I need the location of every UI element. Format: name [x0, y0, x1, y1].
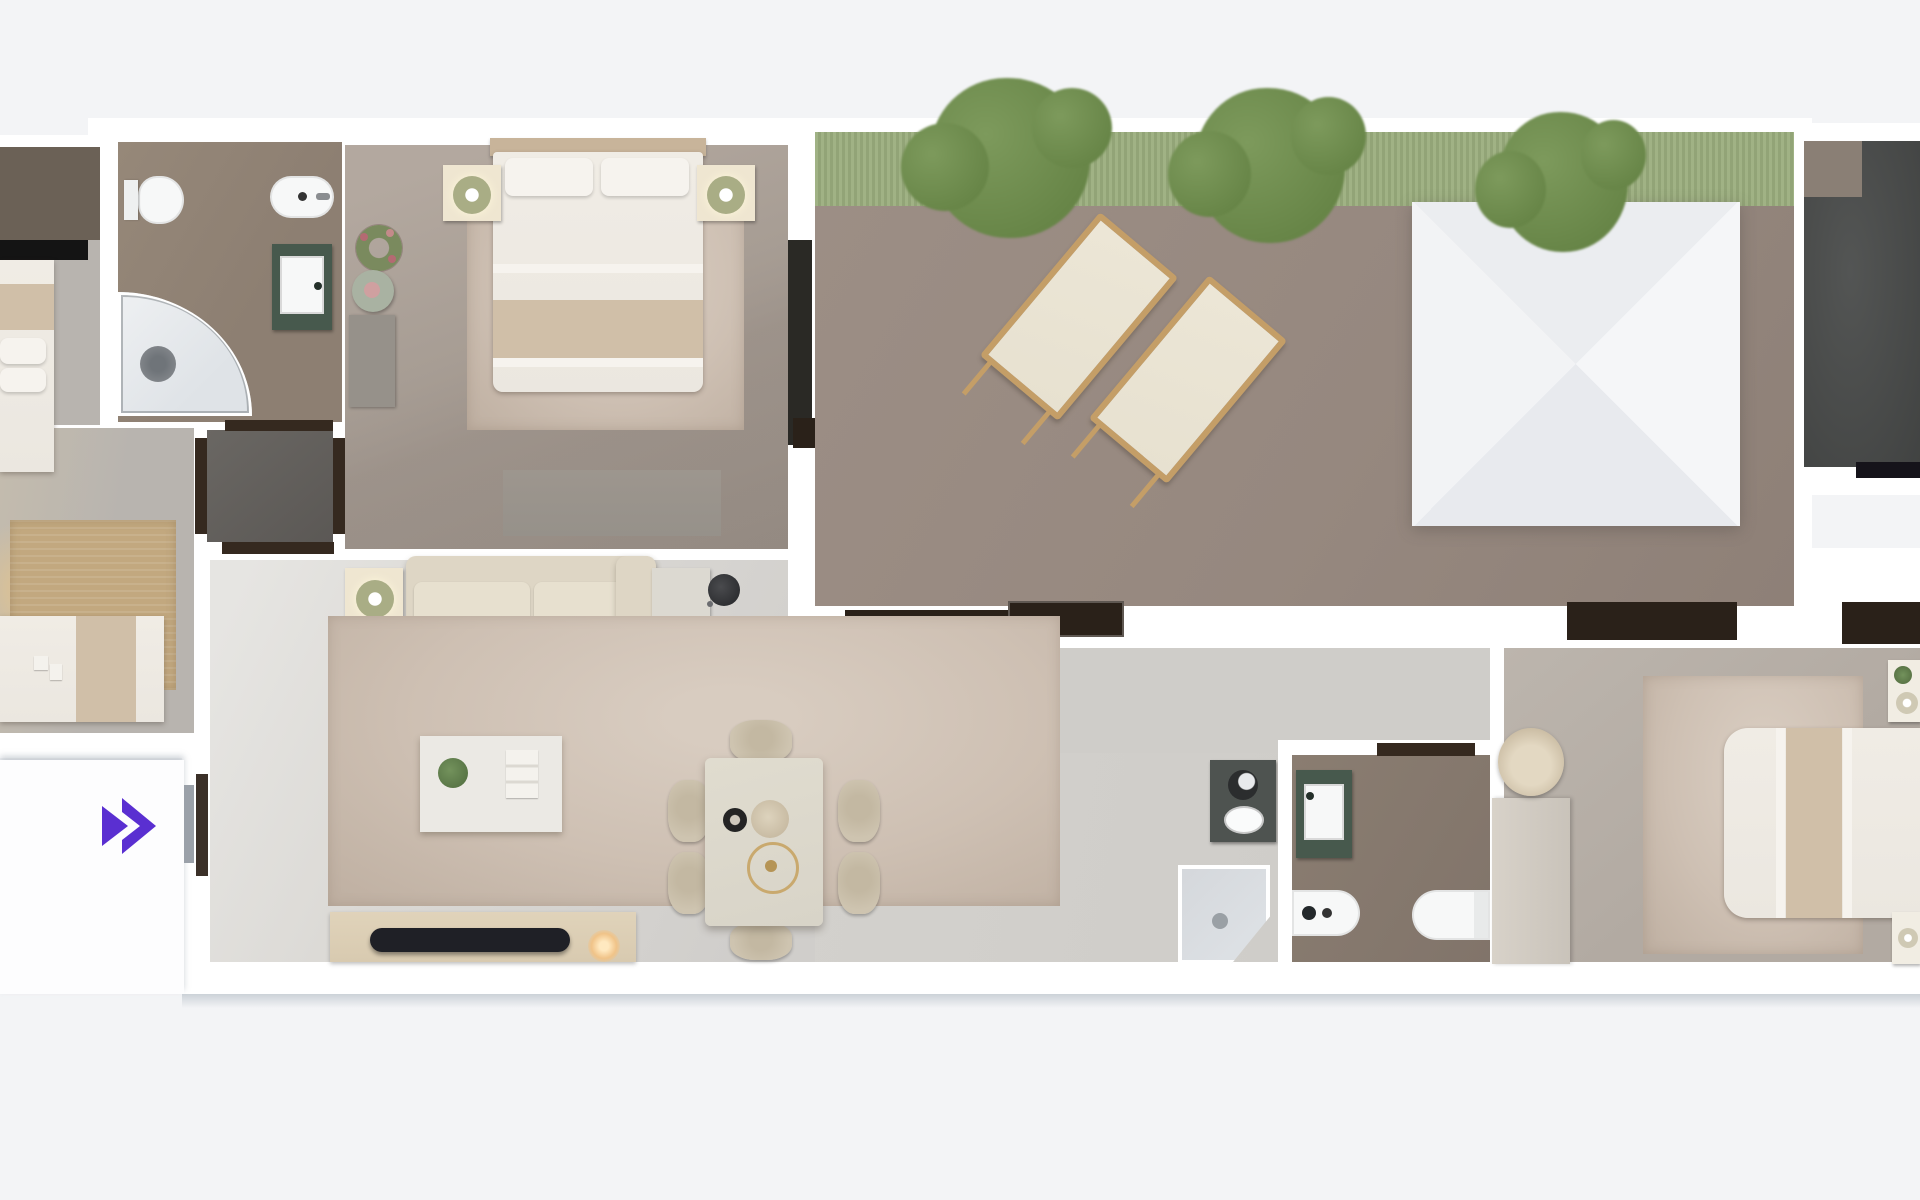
tree	[930, 78, 1090, 238]
table-lamp	[1898, 928, 1918, 948]
single-bed-stripe	[76, 616, 136, 722]
vanity-bathroom-1	[272, 244, 332, 330]
desk	[1492, 798, 1570, 964]
oval-sink	[1224, 806, 1264, 834]
media-room-cabinet	[1804, 141, 1862, 197]
shower-drain	[1212, 913, 1228, 929]
bed-1-pillow	[505, 158, 593, 196]
bed-1	[493, 152, 703, 392]
building-shadow	[182, 994, 1920, 1008]
bidet-faucet	[316, 193, 330, 200]
wreath-flower	[360, 233, 368, 241]
dining-table	[705, 758, 823, 926]
doorframe	[1377, 743, 1475, 756]
expand-button[interactable]	[98, 796, 160, 856]
nightstand	[1892, 912, 1920, 964]
bed-3-pillow	[0, 368, 46, 392]
dining-chair	[838, 780, 880, 842]
media-room-console	[1856, 462, 1920, 478]
vestibule-floor	[207, 430, 333, 542]
black-bowl	[723, 808, 747, 832]
doorframe	[333, 438, 345, 534]
round-side-table	[352, 270, 394, 312]
entry-doorframe	[196, 774, 208, 876]
bedroom-1-dresser	[503, 470, 721, 536]
console-lamp	[588, 930, 620, 962]
wreath-flower	[386, 229, 394, 237]
plant	[1894, 666, 1912, 684]
bidet	[270, 176, 334, 218]
toilet-tank	[1474, 892, 1488, 938]
table-lamp	[453, 176, 491, 214]
bedroom-1-wardrobe	[349, 315, 395, 407]
faucet	[1306, 792, 1314, 800]
table-lamp	[707, 176, 745, 214]
faucet	[314, 282, 322, 290]
bidet	[1292, 890, 1360, 936]
sliding-window	[1567, 602, 1737, 640]
toilet	[1412, 890, 1490, 940]
dining-chair	[730, 720, 792, 762]
bed-1-stripe	[493, 300, 703, 358]
bed-3	[0, 260, 54, 472]
doorframe	[222, 542, 334, 554]
dining-chair	[668, 852, 710, 914]
books	[506, 750, 538, 798]
wardrobe-dark	[0, 147, 100, 240]
coffee-table	[420, 736, 562, 832]
tree	[1195, 88, 1345, 243]
floor-plan-screenshot	[0, 0, 1920, 1200]
tree	[1498, 112, 1628, 252]
bed-2	[1724, 728, 1920, 918]
bidet-drain	[1322, 908, 1332, 918]
dining-chair	[668, 780, 710, 842]
centerpiece-bowl	[751, 800, 789, 838]
bed-1-pillow	[601, 158, 689, 196]
sliding-window	[1842, 602, 1920, 644]
bed-3-pillow	[0, 338, 46, 364]
doorframe	[225, 420, 333, 431]
dining-chair	[838, 852, 880, 914]
tray-items	[34, 656, 48, 670]
tv	[370, 928, 570, 952]
bed-2-fold	[1843, 728, 1852, 918]
pendant-center	[765, 860, 777, 872]
shower-drain	[140, 346, 176, 382]
bed-2-stripe	[1786, 728, 1842, 918]
table-decor	[364, 282, 380, 298]
toilet	[138, 176, 184, 224]
window-jamb	[793, 418, 815, 448]
table-lamp	[1896, 692, 1918, 714]
round-basin	[1228, 770, 1258, 800]
single-bed	[0, 616, 164, 722]
fast-forward-icon	[98, 796, 160, 856]
dining-chair	[730, 922, 792, 960]
bed-1-fold	[493, 264, 703, 273]
closet-strip	[0, 240, 88, 260]
nightstand	[1888, 660, 1920, 722]
bed-3-stripe	[0, 284, 54, 330]
plant	[438, 758, 468, 788]
bidet-drain	[298, 192, 307, 201]
toilet-tank	[124, 180, 138, 220]
desk-chair	[1498, 728, 1564, 796]
vanity-bathroom-2	[1296, 770, 1352, 858]
bedroom-1-closet-strip	[788, 240, 812, 445]
floor-lamp	[708, 574, 740, 606]
bed-1-fold	[493, 358, 703, 367]
wreath-flower	[388, 255, 396, 263]
entry-door-leaf	[184, 785, 194, 863]
kitchen-counter	[1210, 760, 1276, 842]
bidet-faucet	[1302, 906, 1316, 920]
doorframe	[195, 438, 207, 534]
bed-2-fold	[1776, 728, 1785, 918]
tray-items	[50, 664, 62, 680]
wreath-decor	[356, 225, 402, 271]
table-lamp	[356, 580, 394, 618]
